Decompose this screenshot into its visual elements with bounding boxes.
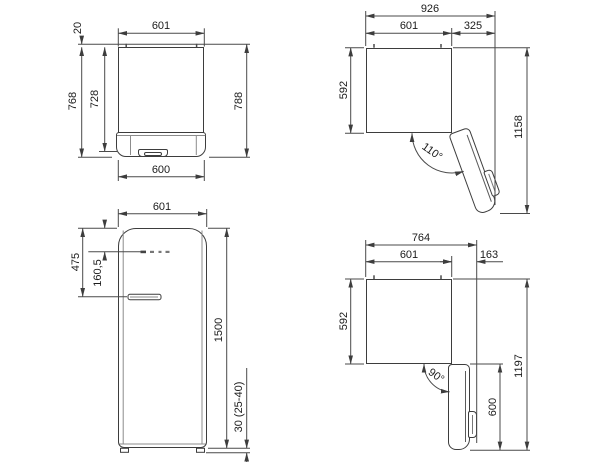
- dim-label-v3-logo-from-top: 160,5: [92, 228, 104, 318]
- dim-label-v4-door-overhang: 163: [444, 249, 534, 261]
- dim-label-v3-feet-height: 30 (25-40): [233, 362, 245, 452]
- fridge-body-top-view-closed: [118, 47, 204, 133]
- dim-label-v4-total-width: 764: [376, 232, 466, 244]
- door-handle-top-view: [138, 149, 168, 157]
- dim-label-v2-door-swing: 325: [428, 20, 518, 32]
- dim-label-v4-total-depth: 1197: [513, 321, 525, 411]
- dim-label-v1-width-top: 601: [116, 20, 206, 32]
- dim-label-v4-body-width: 601: [364, 249, 454, 261]
- fridge-front-view: [118, 228, 206, 448]
- dim-label-v4-door-depth: 600: [487, 362, 499, 452]
- door-handle-line: [488, 174, 495, 192]
- dim-label-v1-width-bottom: 600: [116, 164, 206, 176]
- door-handle-inner: [144, 152, 162, 156]
- dim-label-v3-handle-from-top: 475: [70, 217, 82, 307]
- dim-label-v1-depth-body: 728: [89, 54, 101, 144]
- fridge-door-open-90: [448, 364, 470, 450]
- dim-label-v3-width: 601: [117, 201, 207, 213]
- door-handle-line: [472, 415, 473, 434]
- dim-label-v1-depth-total: 768: [67, 56, 79, 146]
- fridge-body-top-view-110: [366, 48, 452, 134]
- dimension-drawing: 601 20 768 728 788 600 926 601 325 592 1…: [0, 0, 600, 471]
- dim-label-v2-total-width: 926: [385, 3, 475, 15]
- door-handle: [483, 169, 501, 197]
- dim-label-v2-total-depth: 1158: [513, 82, 525, 172]
- dim-label-v2-body-depth: 592: [338, 45, 350, 135]
- dim-label-v1-depth-handle: 788: [233, 56, 245, 146]
- door-panel-line: [465, 371, 466, 442]
- door-panel-line: [467, 135, 492, 202]
- dim-label-v3-height: 1500: [213, 285, 225, 375]
- dim-label-v4-body-depth: 592: [338, 276, 350, 366]
- door-handle: [468, 411, 477, 438]
